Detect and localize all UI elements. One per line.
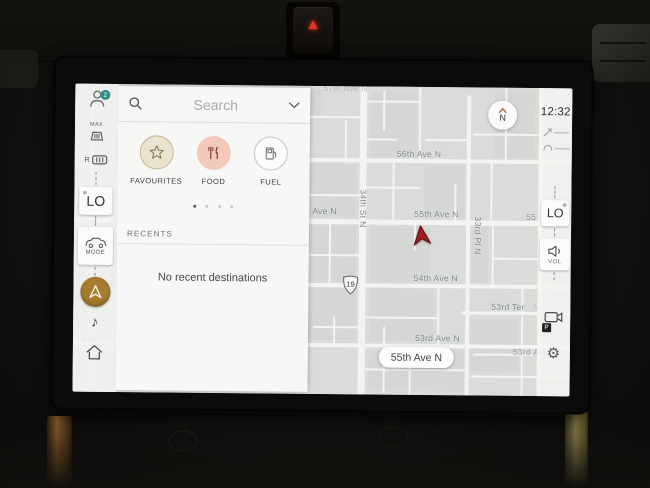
max-defrost-button[interactable]: MAX — [75, 122, 118, 142]
category-label: FAVOURITES — [127, 176, 184, 186]
page-dot — [218, 205, 221, 208]
rear-defrost-icon — [92, 154, 108, 166]
left-sidebar: 2 MAX R — [72, 84, 118, 392]
hazard-warning-icon: ▲ — [306, 16, 321, 54]
map-street-label: 57th Ave N — [323, 84, 368, 94]
map-street-label: 55 — [526, 212, 536, 222]
search-input[interactable]: Search — [118, 86, 310, 124]
parking-badge: P — [542, 323, 551, 332]
right-sidebar: 12:32 ❄ LO — [536, 88, 572, 396]
fuel-pump-icon — [254, 136, 288, 170]
home-icon — [85, 344, 104, 361]
driver-temperature-button[interactable]: ❄ LO — [79, 187, 112, 215]
map-street-label: 53rd Ter — [491, 302, 525, 312]
search-icon — [128, 96, 143, 111]
touchscreen-bezel: 57th Ave N56th Ave N55th Ave N5554th Ave… — [52, 57, 591, 412]
map-street-label: 55th Ave N — [414, 209, 459, 219]
clock: 12:32 — [539, 106, 572, 118]
air-vent — [592, 24, 650, 82]
route-shield-number: 19 — [346, 280, 354, 289]
air-vent — [0, 50, 38, 88]
profile-badge: 2 — [100, 90, 110, 100]
route-shield-us19: 19 — [341, 274, 359, 295]
map-street-label: 53rd Ave N — [415, 333, 460, 343]
search-placeholder: Search — [143, 96, 288, 113]
hazard-button[interactable]: ▲ — [293, 7, 333, 54]
map-street-label: 54th Ave N — [414, 273, 459, 283]
connector-line — [95, 267, 96, 276]
volume-button[interactable]: VOL — [540, 238, 570, 270]
profile-button[interactable]: 2 — [75, 89, 118, 108]
mode-label: MODE — [85, 250, 105, 256]
climate-mode-button[interactable]: MODE — [78, 227, 113, 265]
navigation-arrow-icon — [87, 284, 103, 300]
recents-empty-message: No recent destinations — [117, 271, 309, 285]
category-row: FAVOURITES FOOD — [117, 122, 310, 187]
vehicle-status-icon — [543, 144, 553, 152]
connector-line — [554, 228, 555, 236]
connectivity-status-icon — [543, 128, 552, 137]
dashboard: ▲ 57th Ave N56th Ave N55th Ave N5554th A… — [0, 0, 650, 488]
gear-icon: ⚙ — [547, 345, 561, 362]
volume-label: VOL — [548, 259, 561, 265]
page-dot — [193, 205, 196, 208]
car-icon — [83, 236, 107, 249]
map-street-label: 33rd Pl N — [473, 216, 483, 254]
recents-header: RECENTS — [117, 224, 309, 246]
front-defrost-icon — [87, 128, 105, 142]
connector-line — [554, 272, 555, 280]
category-fuel-button[interactable]: FUEL — [242, 136, 300, 187]
compass-button[interactable]: N — [488, 101, 517, 130]
page-dot — [206, 205, 209, 208]
map-street-label: Ave N — [312, 206, 337, 216]
category-favourites-button[interactable]: FAVOURITES — [127, 135, 185, 186]
map-street-label: 56th Ave N — [397, 149, 442, 159]
cutlery-icon — [197, 136, 231, 170]
current-street-pill: 55th Ave N — [379, 347, 454, 369]
dashboard-bottom-trim — [0, 414, 650, 488]
connector-line — [554, 186, 555, 198]
rear-defrost-button[interactable]: R — [75, 154, 118, 166]
current-street-label: 55th Ave N — [391, 351, 442, 363]
passenger-temperature-value: LO — [547, 207, 564, 220]
parking-camera-button[interactable]: P — [543, 310, 565, 330]
connector-line — [95, 172, 96, 185]
vehicle-status — [543, 144, 570, 152]
settings-button[interactable]: ⚙ — [537, 344, 570, 362]
search-panel: Search FAVOURITES — [116, 86, 311, 392]
rear-defrost-label: R — [85, 156, 90, 163]
compass-label: N — [499, 114, 506, 123]
speaker-icon — [547, 244, 563, 258]
touchscreen: 57th Ave N56th Ave N55th Ave N5554th Ave… — [72, 84, 572, 397]
category-label: FOOD — [185, 177, 242, 187]
map-street-label: 34th St N — [358, 189, 368, 227]
snowflake-icon: ❄ — [562, 202, 567, 209]
category-label: FUEL — [242, 177, 299, 187]
category-food-button[interactable]: FOOD — [185, 136, 243, 187]
chevron-down-icon[interactable] — [288, 102, 300, 109]
passenger-temperature-button[interactable]: ❄ LO — [541, 200, 569, 226]
star-icon — [139, 135, 173, 169]
vehicle-position-arrow — [411, 224, 432, 247]
connector-line — [95, 216, 96, 226]
navigation-app-button[interactable] — [80, 277, 110, 307]
music-note-icon: ♪ — [91, 314, 99, 331]
page-indicator[interactable] — [117, 194, 309, 214]
connectivity-status — [543, 128, 569, 137]
snowflake-icon: ❄ — [82, 190, 87, 197]
home-button[interactable] — [73, 344, 116, 361]
driver-temperature-value: LO — [86, 194, 105, 208]
media-button[interactable]: ♪ — [73, 314, 116, 331]
page-dot — [230, 205, 233, 208]
